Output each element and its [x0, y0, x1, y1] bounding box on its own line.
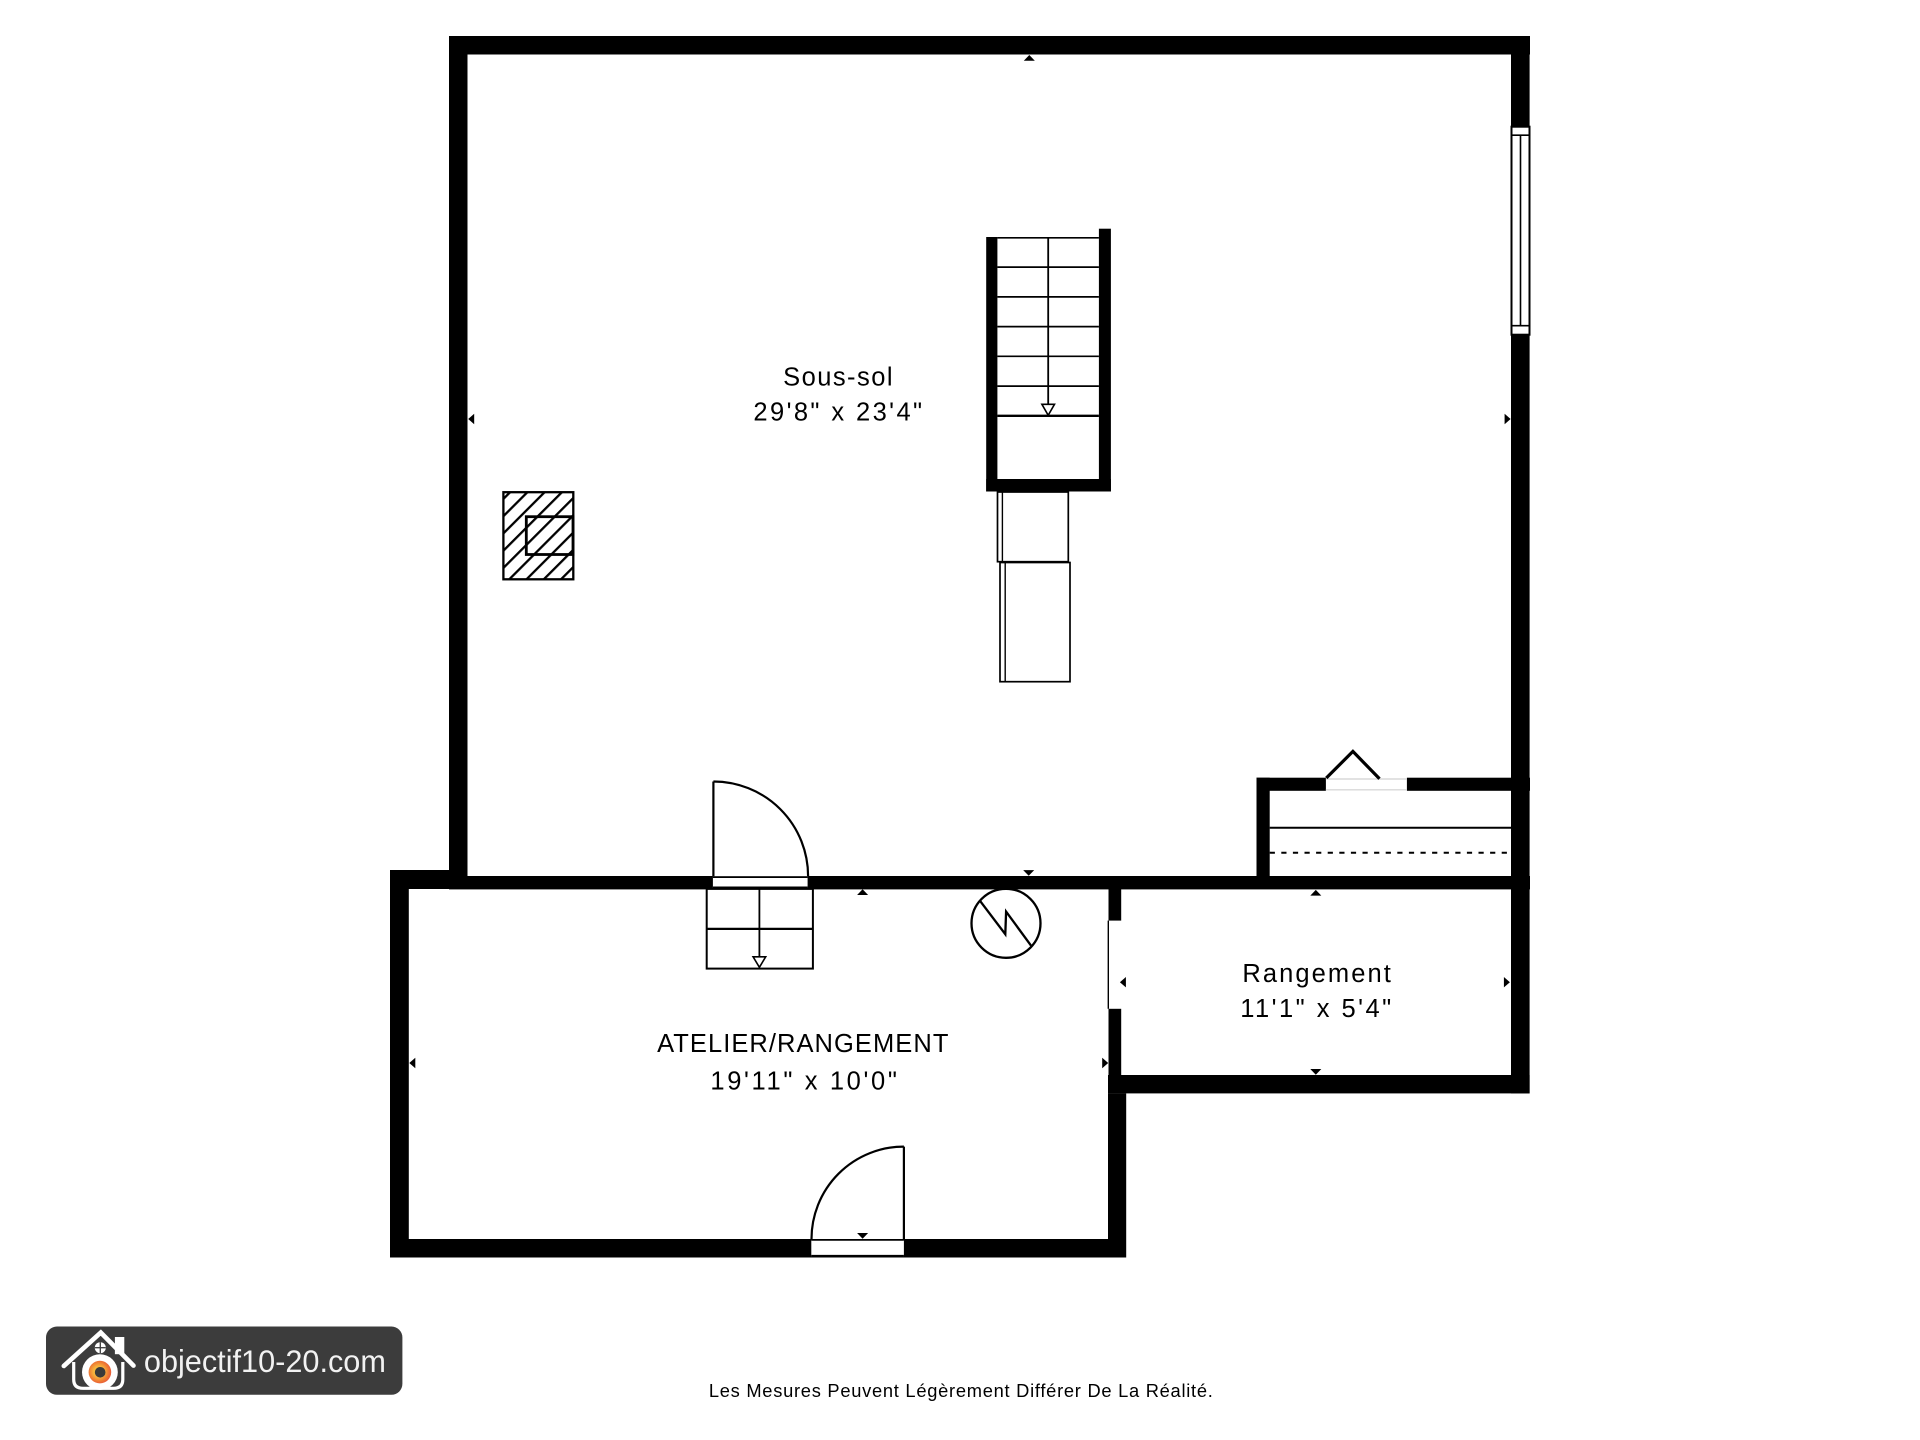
svg-text:objectif10-20.com: objectif10-20.com: [144, 1344, 386, 1379]
svg-text:29'8" x 23'4": 29'8" x 23'4": [753, 399, 922, 427]
svg-text:Sous-sol: Sous-sol: [783, 363, 892, 391]
svg-text:Les Mesures Peuvent Légèrement: Les Mesures Peuvent Légèrement Différer …: [709, 1380, 1213, 1401]
svg-text:ATELIER/RANGEMENT: ATELIER/RANGEMENT: [657, 1030, 948, 1058]
svg-text:Rangement: Rangement: [1242, 960, 1390, 988]
